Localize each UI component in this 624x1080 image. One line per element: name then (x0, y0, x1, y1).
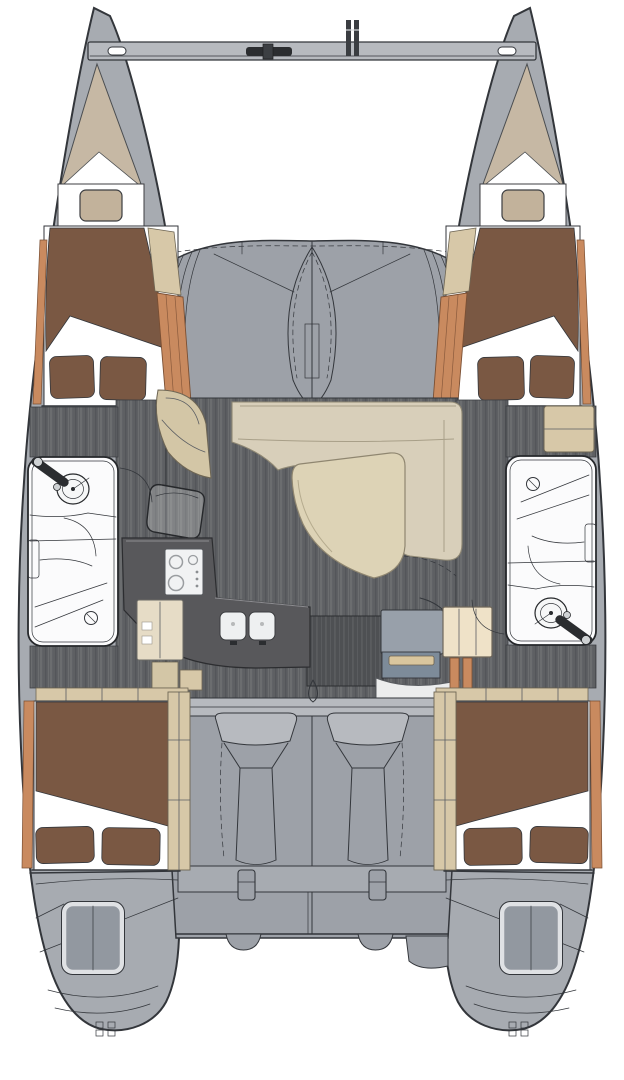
beam-fitting-right (498, 47, 516, 55)
stove (165, 549, 203, 595)
port-aft-cabin (22, 688, 190, 870)
aft-bench (178, 866, 446, 892)
beam-fitting-left (108, 47, 126, 55)
aft-bench-hatch-port (238, 870, 255, 900)
starboard-head (506, 456, 596, 647)
companionway-dark-floor (307, 616, 383, 686)
galley-step2 (180, 670, 202, 690)
nav-cabinet (443, 607, 492, 657)
transom-step-starboard (406, 936, 448, 968)
nav-fiddle-rail (389, 656, 434, 665)
port-head (28, 455, 118, 646)
catamaran-layout-diagram (0, 0, 624, 1080)
galley-step1 (152, 662, 178, 688)
starboard-aft-cabin (434, 688, 602, 870)
salon-chair (147, 485, 204, 539)
nav-desk (381, 610, 443, 654)
aft-bench-hatch-starboard (369, 870, 386, 900)
